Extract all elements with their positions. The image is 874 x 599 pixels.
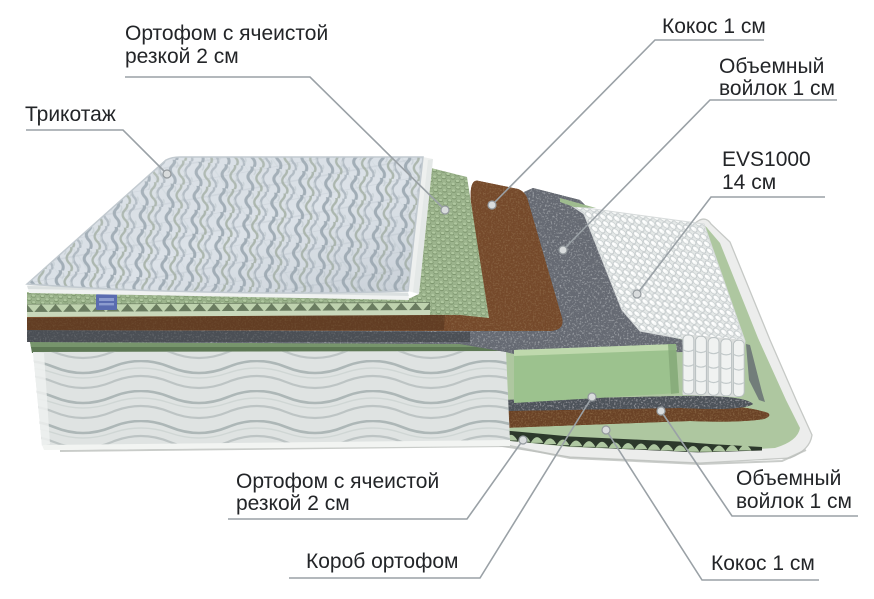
svg-text:Трикотаж: Трикотаж	[25, 103, 116, 126]
svg-text:Кокос 1 см: Кокос 1 см	[711, 552, 815, 575]
svg-text:войлок 1 см: войлок 1 см	[736, 490, 852, 513]
svg-text:резкой 2 см: резкой 2 см	[236, 492, 350, 515]
svg-text:резкой 2 см: резкой 2 см	[125, 45, 239, 68]
svg-text:Кокос 1 см: Кокос 1 см	[662, 15, 766, 38]
svg-text:14 см: 14 см	[722, 171, 776, 194]
svg-text:Объемный: Объемный	[719, 55, 824, 78]
svg-text:EVS1000: EVS1000	[722, 148, 811, 171]
svg-text:войлок 1 см: войлок 1 см	[719, 77, 835, 100]
svg-text:Короб ортофом: Короб ортофом	[306, 550, 459, 573]
svg-text:Ортофом с ячеистой: Ортофом с ячеистой	[236, 470, 439, 493]
svg-text:Ортофом с ячеистой: Ортофом с ячеистой	[125, 22, 328, 45]
svg-text:Объемный: Объемный	[736, 467, 841, 490]
